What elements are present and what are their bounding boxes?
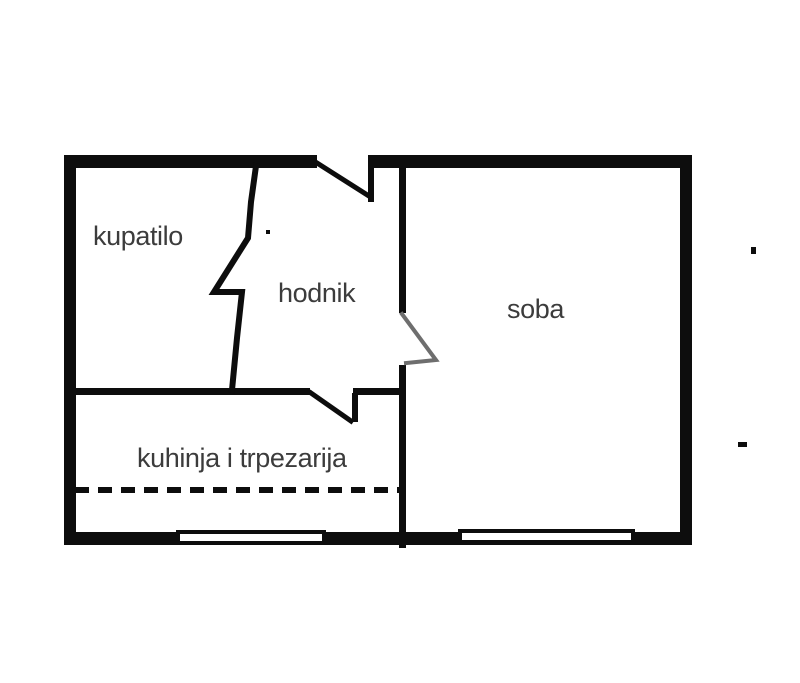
stray-dot-right-upper xyxy=(751,247,756,254)
room-label-kuhinja-i-trpezarija: kuhinja i trpezarija xyxy=(137,445,347,472)
floor-plan: kupatilo hodnik soba kuhinja i trpezarij… xyxy=(0,0,800,683)
wall-kuhinja-door-jamb-stub xyxy=(352,393,358,422)
entrance-door-leaf xyxy=(317,163,369,196)
wall-outer-right xyxy=(680,155,692,545)
soba-window xyxy=(460,531,633,542)
floor-plan-drawing xyxy=(0,0,800,683)
stray-dot-kupatilo xyxy=(266,230,270,234)
stray-dash-right-lower xyxy=(738,442,747,447)
kuhinja-window xyxy=(178,532,324,543)
wall-outer-left xyxy=(64,155,76,545)
kuhinja-door-leaf xyxy=(311,393,351,421)
wall-kupatilo-hodnik-zigzag xyxy=(214,166,256,390)
wall-hodnik-soba-upper xyxy=(399,167,406,313)
wall-kuhinja-top-left-segment xyxy=(70,388,310,395)
wall-outer-top-right-segment xyxy=(368,155,692,168)
wall-outer-top-left-segment xyxy=(64,155,317,168)
wall-kuhinja-top-right-segment xyxy=(353,388,403,395)
room-label-soba: soba xyxy=(507,296,564,323)
room-label-hodnik: hodnik xyxy=(278,280,355,307)
room-label-kupatilo: kupatilo xyxy=(93,223,183,250)
soba-door-leaf xyxy=(402,314,436,363)
